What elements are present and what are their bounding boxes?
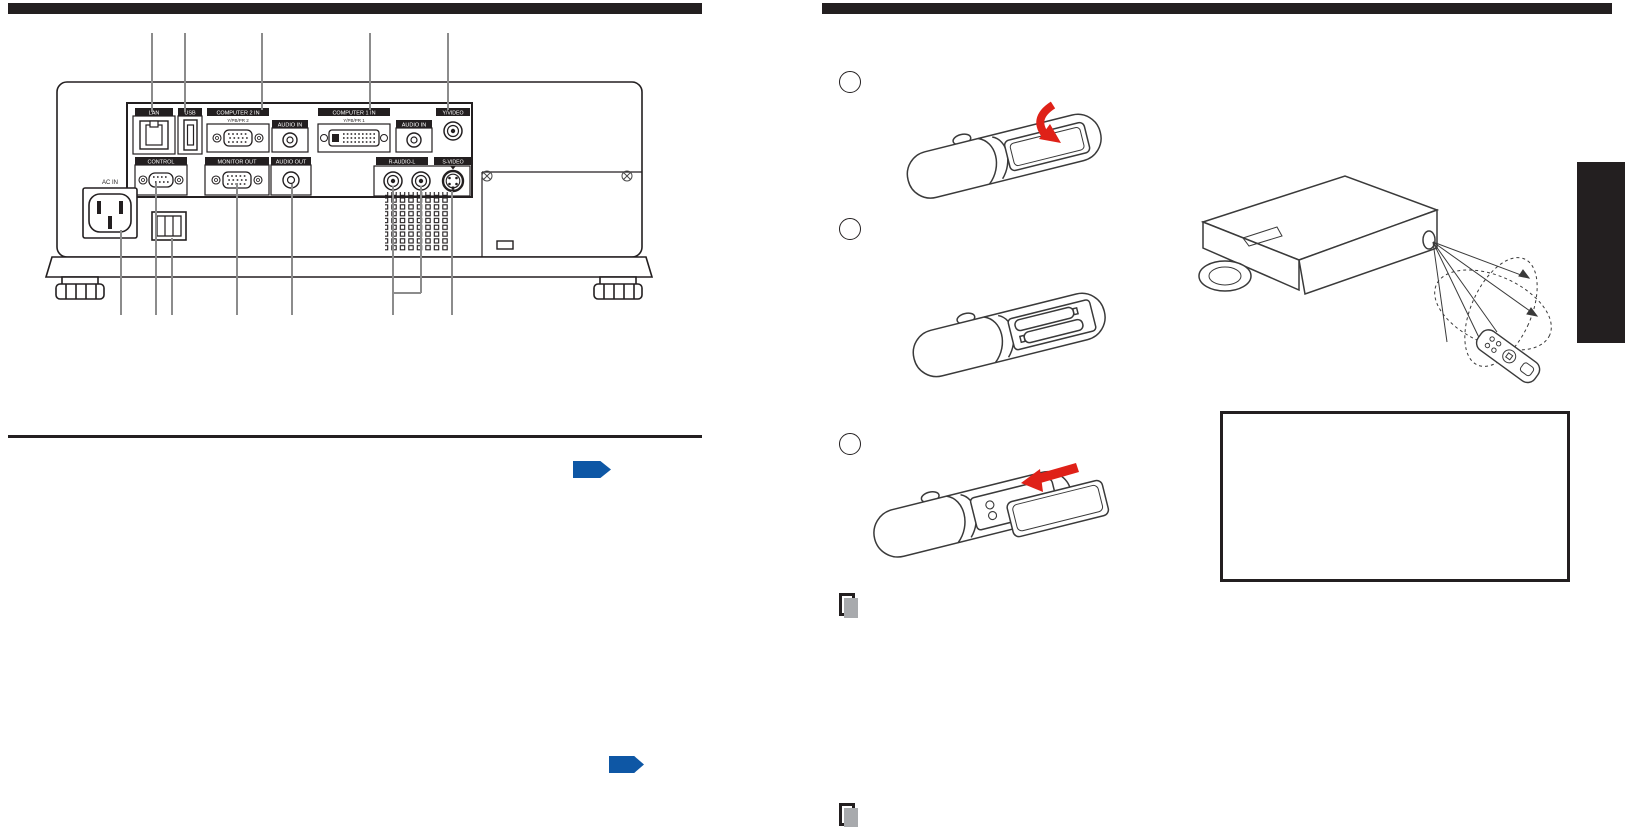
computer1-in-sublabel: Y/PB/PR 1	[343, 118, 365, 123]
ac-in-label: AC IN	[102, 180, 118, 186]
adjuster-foot-right	[594, 277, 642, 299]
page-ref-arrow-icon	[609, 756, 644, 773]
computer2-in-label: COMPUTER 2 IN	[216, 111, 259, 117]
lan-port: LAN	[133, 108, 175, 154]
vent-grille	[385, 192, 450, 251]
note-memo-icon	[839, 593, 863, 623]
header-bar-right	[822, 3, 1612, 14]
ac-inlet: AC IN	[83, 180, 137, 238]
manual-page: LAN USB COMPUTER 2 IN Y/PB/PR 2	[0, 0, 1625, 827]
remote-control-small	[1473, 326, 1543, 386]
page-index-tab	[1577, 162, 1625, 343]
r-audio-l-label: R-AUDIO-L	[389, 160, 416, 166]
section-divider	[8, 435, 702, 438]
note-box	[1220, 411, 1570, 582]
computer1-in-label: COMPUTER 1 IN	[332, 111, 375, 117]
remote-step3-illustration	[855, 438, 1117, 576]
page-ref-arrow-icon	[573, 461, 611, 478]
step-1-marker	[839, 71, 861, 93]
power-switch	[152, 212, 186, 240]
computer2-in-sublabel: Y/PB/PR 2	[227, 118, 249, 123]
s-video-label: S-VIDEO	[442, 160, 463, 166]
rear-panel-diagram: LAN USB COMPUTER 2 IN Y/PB/PR 2	[0, 0, 710, 330]
remote-step2-illustration	[905, 266, 1117, 394]
projector-lens	[1199, 261, 1251, 291]
usb-port: USB	[178, 108, 202, 154]
adjuster-foot-left	[56, 277, 104, 299]
note-memo-icon	[839, 803, 863, 827]
remote-operating-range-illustration	[1185, 160, 1557, 410]
step-2-marker	[839, 218, 861, 240]
remote-step1-illustration	[893, 93, 1121, 211]
y-video-label: Y/VIDEO	[442, 111, 463, 117]
